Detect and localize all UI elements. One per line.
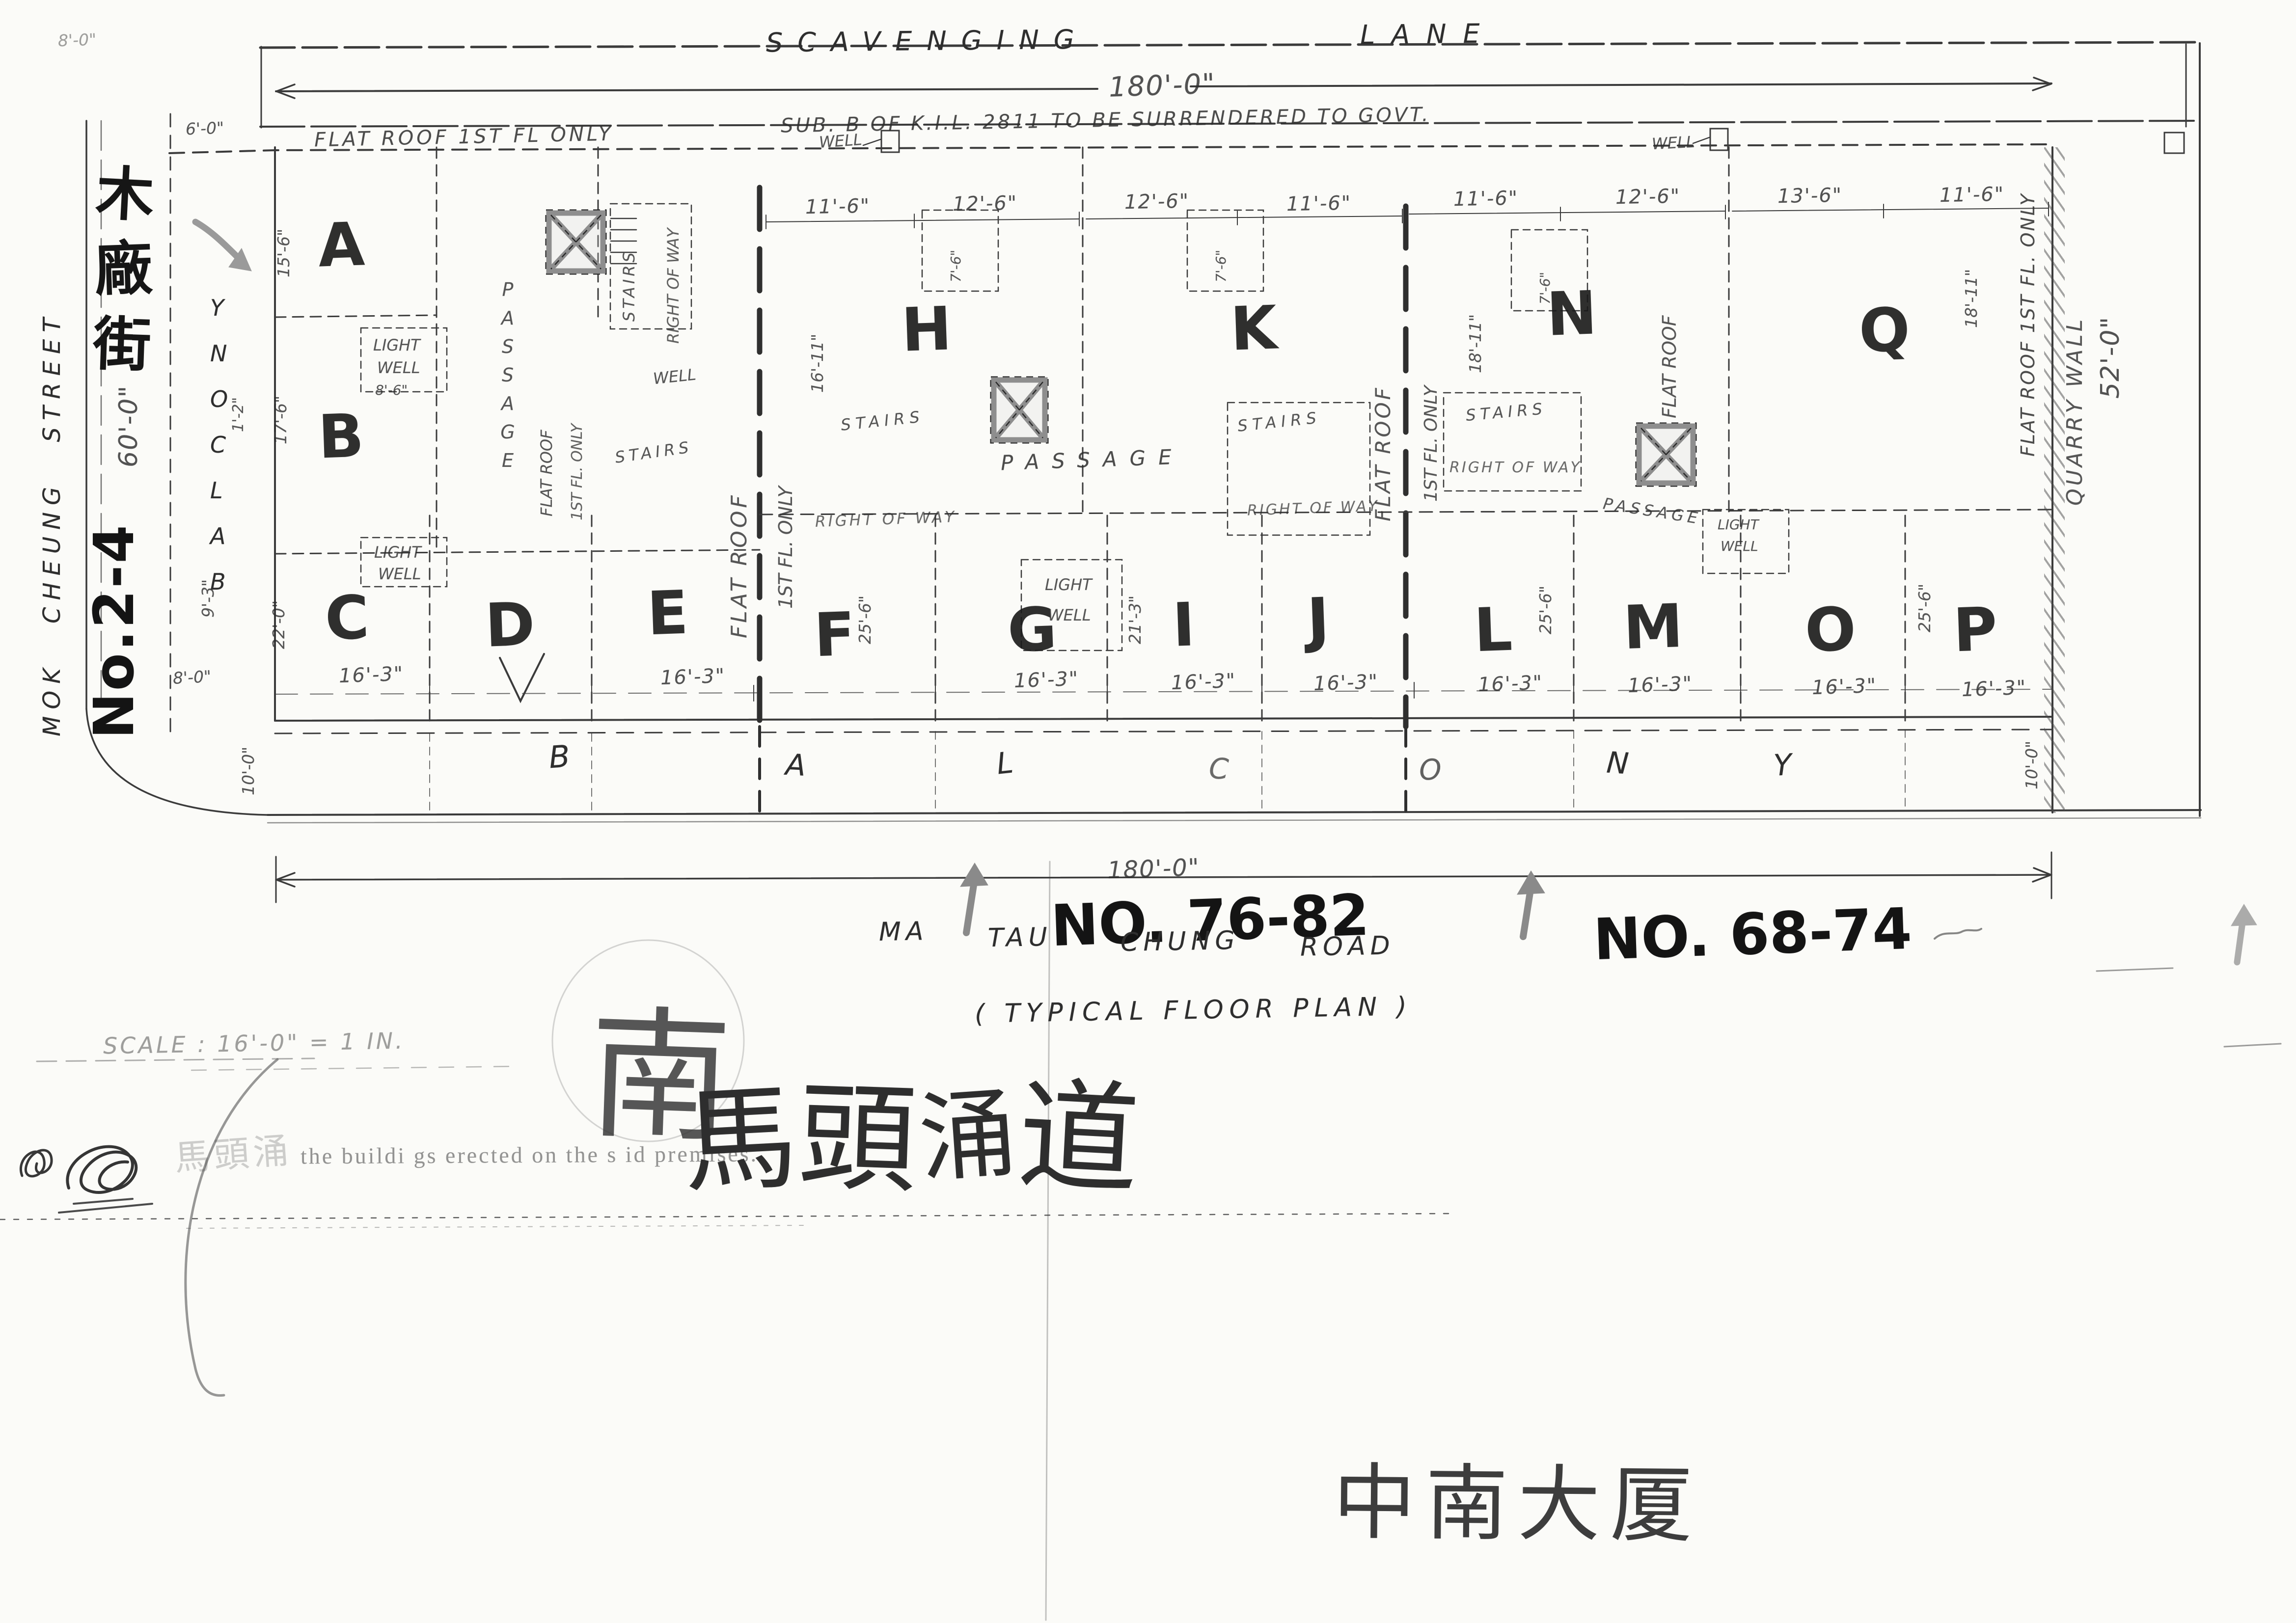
unit-width-dim: 16'-3" [1013, 668, 1079, 693]
balcony-projection-dim: 1'-2" [230, 397, 247, 432]
scale-note: SCALE : 16'-0" = 1 IN. [103, 1028, 406, 1059]
balcony-label-vertical: B A L C O N Y [210, 295, 228, 595]
street-name-chinese-char: 木 [94, 146, 157, 233]
first-floor-only-label: 1ST FL. ONLY [569, 424, 586, 520]
flat-depth-dim: 17'-6" [271, 396, 290, 444]
flat-label-d: D [484, 589, 536, 660]
flat-label-i: I [1172, 590, 1196, 660]
corner-dim: 8'-0" [57, 30, 96, 51]
flat-depth-dim: 22'-0" [269, 600, 288, 649]
flat-label-h: H [901, 294, 953, 365]
light-well-label: WELL [1048, 606, 1091, 624]
room-dim: 7'-6" [1537, 272, 1553, 304]
balcony-row-letter: N [1606, 746, 1630, 782]
flat-label-o: O [1804, 594, 1858, 666]
balcony-row-letter: B [548, 738, 572, 776]
first-floor-only-label: 1ST FL. ONLY [775, 486, 796, 609]
street-name-chinese-char: 廠 [93, 221, 154, 307]
road-name-word: CHUNG [1120, 926, 1240, 957]
street-name-chinese-char: 街 [92, 297, 153, 382]
flat-label-k: K [1230, 293, 1278, 364]
room-dim: 7'-6" [1213, 250, 1229, 282]
balcony-row-letter: A [785, 748, 807, 783]
balcony-depth-dim: 10'-0" [2022, 741, 2041, 789]
corner-splay-dim: 9'-3" [198, 579, 218, 618]
flat-roof-edge-note: FLAT ROOF 1ST FL. ONLY [2017, 192, 2039, 457]
light-well-label: LIGHT [1718, 516, 1759, 533]
light-well-label: LIGHT [1045, 575, 1092, 594]
quarry-wall-label: QUARRY WALL [2062, 317, 2087, 506]
light-well-label: WELL [377, 358, 420, 377]
well-label: WELL [819, 130, 863, 152]
flat-roof-label: FLAT ROOF [537, 430, 556, 516]
building-name-chinese: 中南大厦 [1333, 1436, 1703, 1559]
room-dim: 18'-11" [1962, 269, 1981, 328]
stair-shaft-icon [546, 210, 606, 274]
unit-width-dim: 16'-3" [1171, 670, 1236, 695]
road-name-word: TAU [987, 922, 1052, 953]
right-of-way-label: RIGHT OF WAY [1449, 459, 1582, 476]
street-number: No.2-4 [82, 523, 146, 739]
flat-depth-dim: 25'-6" [1536, 586, 1555, 634]
room-dim: 16'-11" [808, 334, 827, 393]
flat-label-l: L [1473, 595, 1514, 666]
bay-dim: 12'-6" [1124, 190, 1190, 214]
room-dim: 7'-6" [948, 250, 964, 282]
flat-label-a: A [317, 209, 366, 280]
passage-label: PASSAGE [497, 279, 519, 478]
balcony-row-letter: O [1419, 753, 1442, 787]
bay-dim: 11'-6" [1453, 187, 1519, 211]
direction-arrow-icon [195, 222, 251, 271]
up-arrow-icon [960, 863, 988, 933]
street-width-dim: 8'-0" [172, 667, 212, 688]
flat-label-b: B [317, 401, 365, 472]
flat-roof-label: FLAT ROOF [727, 492, 752, 638]
unit-width-dim: 16'-3" [1627, 673, 1693, 698]
bay-dim: 11'-6" [1940, 183, 2005, 207]
well-label: WELL [1651, 133, 1695, 154]
scanned-floor-plan-sheet: SCAVENGING LANE 180'-0" SUB. B OF K.I.L.… [0, 0, 2296, 1623]
flat-depth-dim: 25'-6" [855, 595, 875, 644]
stairs-label: STAIRS [620, 249, 638, 322]
up-arrow-icon [2231, 904, 2257, 962]
road-name-word: MA [878, 917, 928, 947]
lane-name: LANE [1360, 18, 1497, 51]
road-name-word: ROAD [1300, 931, 1395, 962]
premises-typed-line: the buildi gs erected on the s id premis… [301, 1141, 758, 1169]
flat-label-n: N [1546, 278, 1598, 349]
flat-label-p: P [1952, 594, 1998, 665]
bay-dim: 12'-6" [953, 192, 1018, 216]
unit-width-dim: 16'-3" [1477, 672, 1543, 697]
room-dim: 18'-11" [1466, 314, 1485, 373]
unit-width-dim: 16'-3" [1313, 671, 1379, 696]
flat-roof-label: FLAT ROOF [1659, 315, 1680, 418]
street-numbers-68-74: NO. 68-74 [1592, 896, 1913, 974]
unit-width-dim: 16'-3" [338, 663, 404, 688]
bay-dim: 13'-6" [1777, 184, 1843, 208]
light-well-label: LIGHT [374, 543, 421, 562]
overall-width-dim-bottom: 180'-0" [1107, 854, 1201, 885]
bay-dim: 12'-6" [1615, 185, 1681, 209]
flat-label-e: E [646, 578, 689, 649]
flat-label-f: F [813, 599, 856, 671]
unit-width-dim: 16'-3" [660, 665, 726, 690]
street-length-dim: 60'-0" [114, 385, 143, 467]
balcony-row-letter: C [1208, 752, 1230, 785]
lane-name: SCAVENGING [766, 24, 1089, 58]
flat-label-q: Q [1858, 295, 1912, 366]
flat-depth-dim: 25'-6" [1915, 584, 1934, 632]
flat-roof-label: FLAT ROOF [1371, 385, 1395, 521]
light-well-label: LIGHT [373, 336, 420, 354]
right-of-way-label: RIGHT OF WAY [664, 228, 683, 344]
balcony-row-letter: L [995, 745, 1015, 781]
light-well-label: WELL [1721, 538, 1758, 554]
flat-label-j: J [1306, 585, 1331, 655]
balcony-depth-dim: 10'-0" [239, 747, 258, 795]
balcony-width-dim: 6'-0" [185, 118, 224, 139]
balcony-row-letter: Y [1773, 748, 1792, 783]
street-name: MOK CHEUNG STREET [38, 311, 66, 736]
road-name-chinese: 馬 頭 涌 道 [683, 1040, 1140, 1215]
overall-width-dim-top: 180'-0" [1108, 68, 1216, 104]
quarry-wall-hatching [2044, 147, 2065, 813]
unit-width-dim: 16'-3" [1811, 675, 1877, 700]
side-depth-dim: 52'-0" [2096, 316, 2125, 399]
light-well-label: WELL [378, 565, 421, 583]
stair-shaft-icon [1636, 423, 1696, 486]
light-well-dim: 8'-6" [375, 382, 408, 398]
stair-shaft-icon [991, 377, 1048, 443]
flat-label-m: M [1622, 591, 1684, 663]
flat-label-c: C [324, 582, 370, 653]
flat-depth-dim: 15'-6" [274, 229, 293, 277]
up-arrow-icon [1517, 871, 1545, 937]
first-floor-only-label: 1ST FL. ONLY [1421, 385, 1441, 502]
flat-depth-dim: 21'-3" [1125, 595, 1145, 644]
bay-dim: 11'-6" [805, 195, 871, 218]
faint-chinese-stamp: 馬頭涌 [173, 1121, 294, 1181]
bay-dim: 11'-6" [1286, 192, 1352, 216]
flat-label-g: G [1007, 594, 1058, 665]
unit-width-dim: 16'-3" [1961, 676, 2027, 702]
